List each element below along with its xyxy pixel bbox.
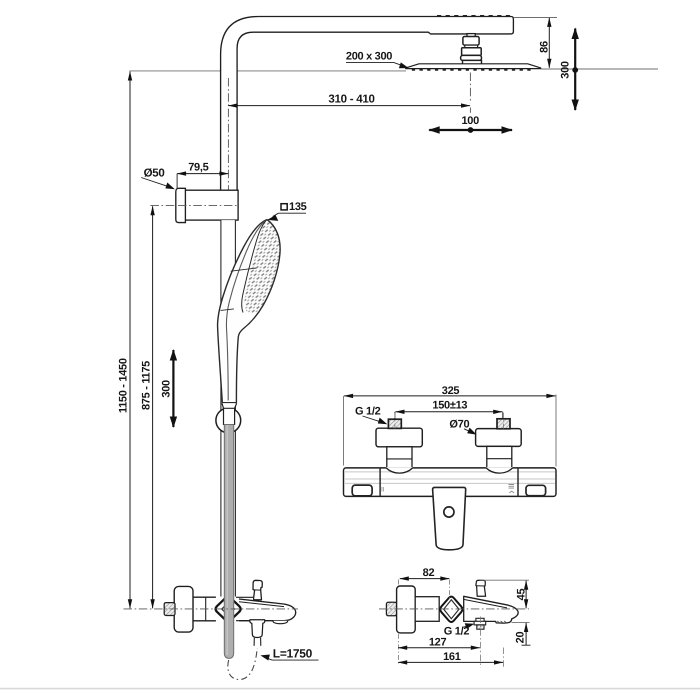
svg-text:G 1/2: G 1/2 — [355, 405, 381, 417]
svg-text:Ø70: Ø70 — [449, 419, 469, 431]
svg-text:20: 20 — [515, 632, 527, 644]
svg-text:150±13: 150±13 — [432, 399, 467, 411]
svg-text:135: 135 — [289, 201, 307, 213]
svg-text:G 1/2: G 1/2 — [444, 626, 470, 638]
svg-text:300: 300 — [161, 380, 173, 398]
svg-text:100: 100 — [461, 115, 479, 127]
svg-text:79,5: 79,5 — [188, 162, 208, 174]
svg-text:86: 86 — [539, 41, 551, 53]
svg-text:300: 300 — [560, 61, 572, 79]
svg-text:875 - 1175: 875 - 1175 — [140, 361, 152, 410]
svg-text:325: 325 — [442, 385, 460, 397]
svg-text:Ø50: Ø50 — [144, 167, 165, 179]
svg-text:200 x 300: 200 x 300 — [346, 50, 392, 62]
svg-text:L=1750: L=1750 — [273, 646, 313, 660]
svg-text:127: 127 — [429, 636, 447, 648]
svg-text:1150 - 1450: 1150 - 1450 — [117, 358, 129, 413]
svg-text:310 - 410: 310 - 410 — [328, 94, 374, 106]
svg-text:45: 45 — [515, 589, 527, 601]
svg-text:161: 161 — [443, 651, 461, 663]
svg-text:82: 82 — [423, 567, 435, 579]
